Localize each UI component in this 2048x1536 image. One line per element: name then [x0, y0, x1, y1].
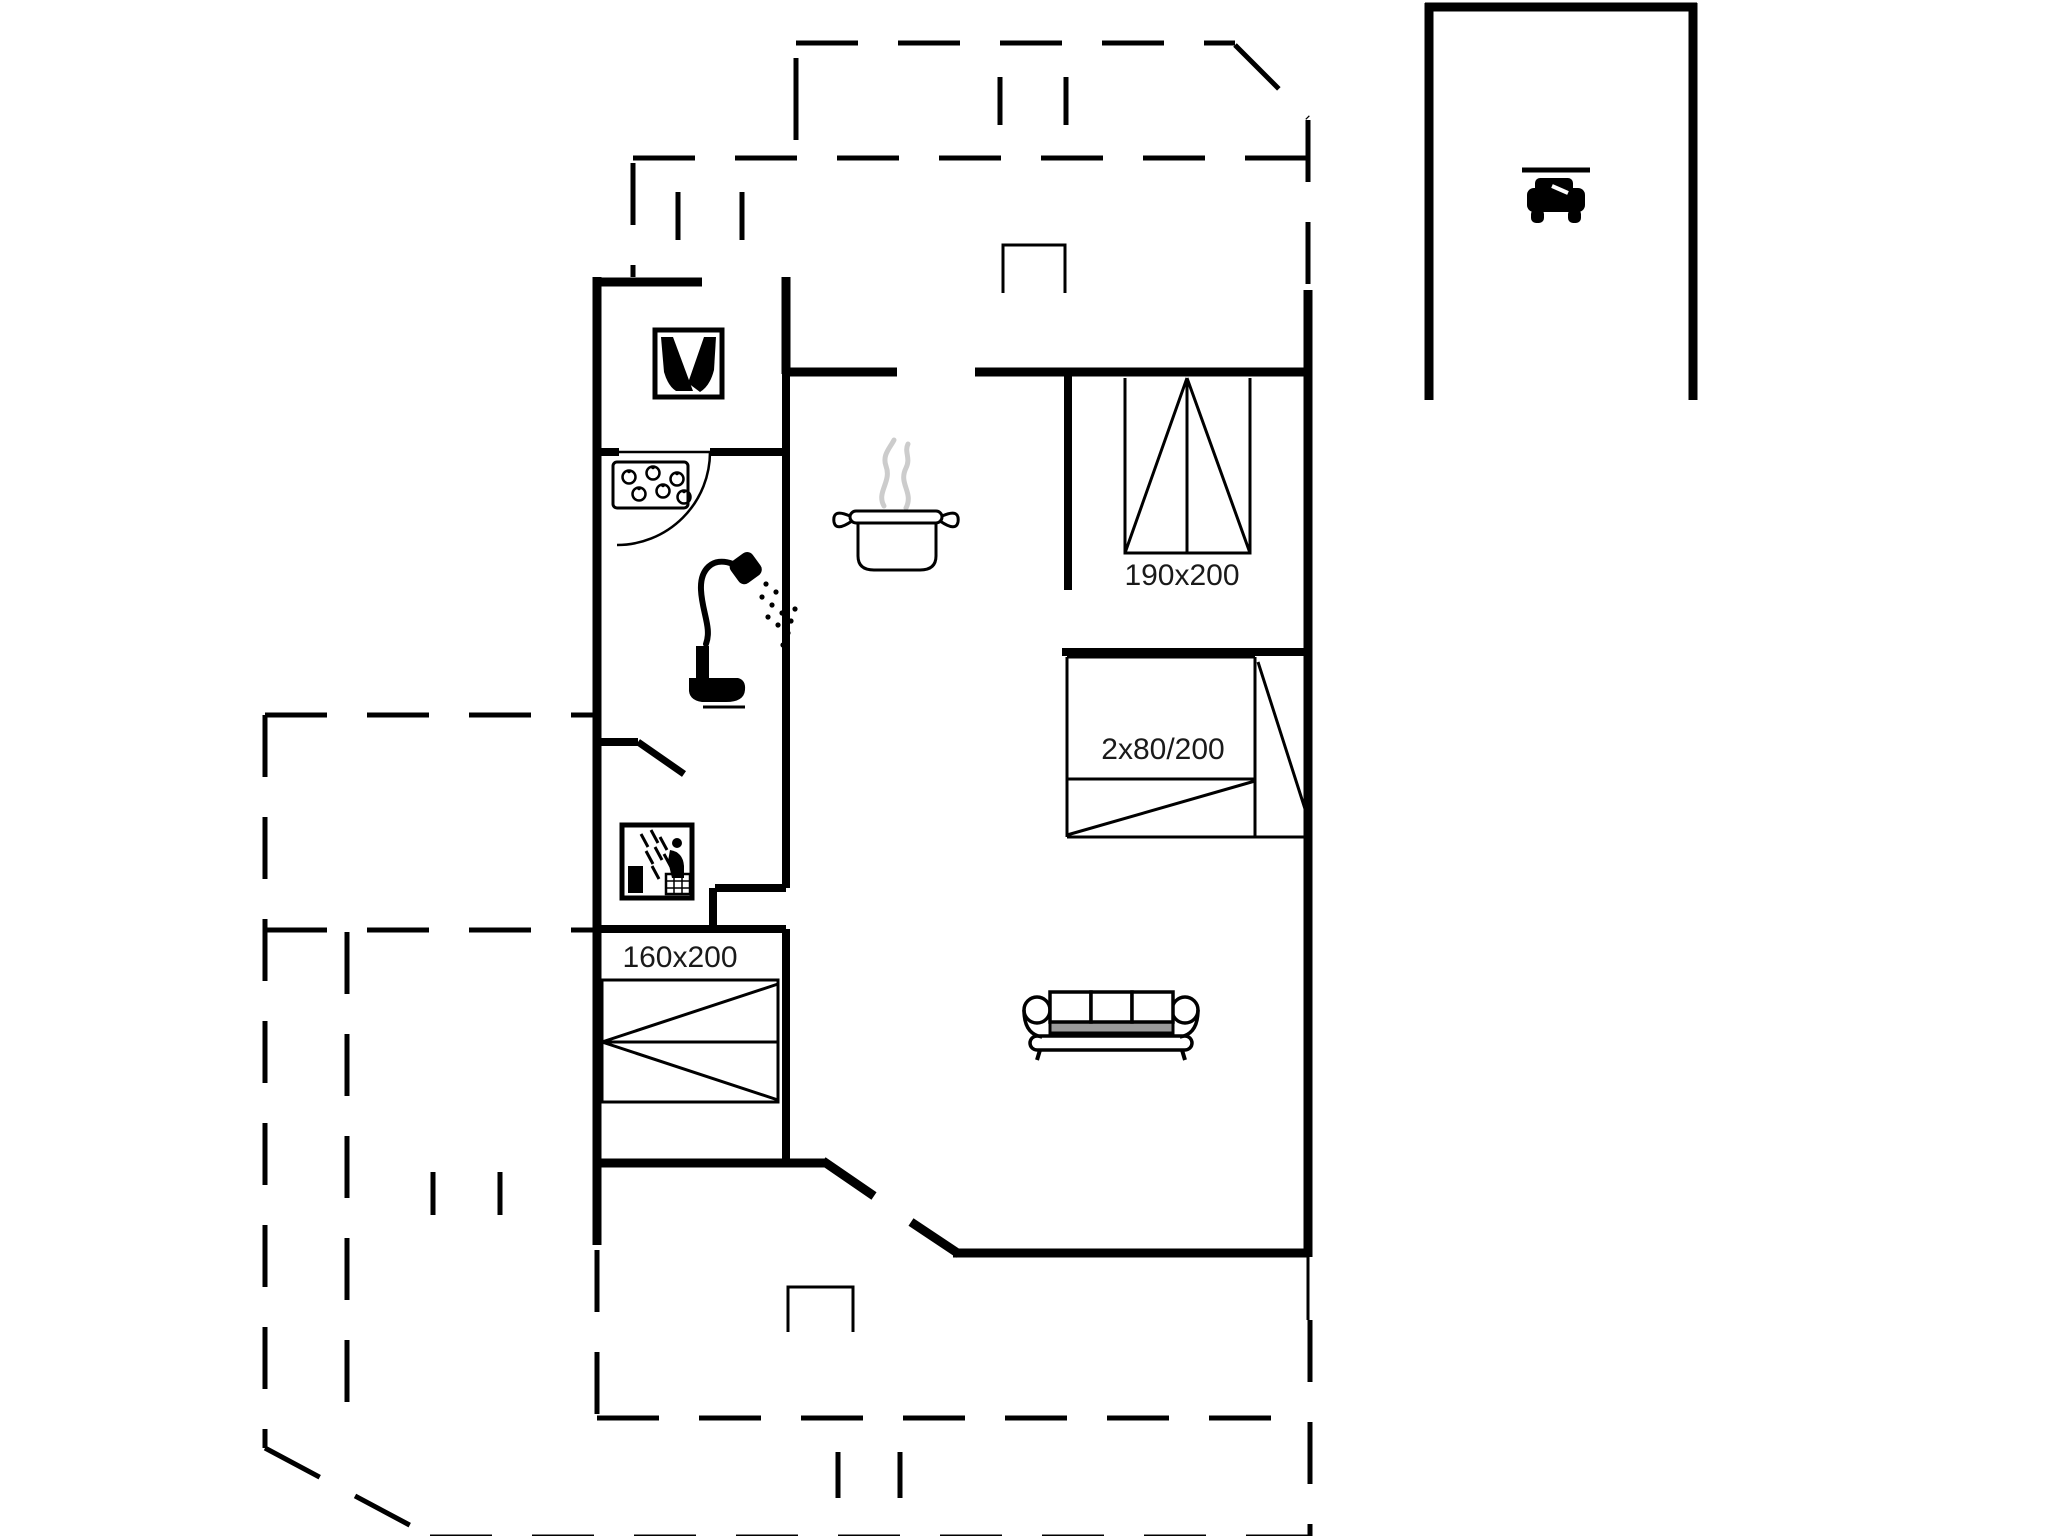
terrace-step-markers — [433, 77, 1066, 1498]
pot-rim — [850, 511, 942, 523]
pot-body — [858, 523, 936, 570]
toilet-tank — [696, 646, 709, 680]
floor-plan-svg: 190x200 2x80/200 160x200 — [0, 0, 2048, 1536]
fireplace-icon — [655, 330, 722, 397]
toilet-icon — [689, 646, 745, 707]
hob-icon — [613, 462, 691, 508]
sofa-arm-right — [1172, 997, 1198, 1023]
shower-spray — [759, 581, 797, 647]
double-bed-label: 190x200 — [1124, 559, 1239, 592]
sauna-icon — [622, 825, 692, 898]
sofa-icon — [1024, 992, 1198, 1060]
car-wheel-left — [1531, 209, 1544, 223]
house-outer-walls — [593, 277, 1308, 1257]
sofa-cushion-3 — [1132, 992, 1173, 1022]
master-bed-symbol — [602, 980, 778, 1102]
car-icon — [1522, 170, 1590, 223]
sofa-cushion-1 — [1050, 992, 1091, 1022]
master-bed-label: 160x200 — [622, 941, 737, 974]
cooking-pot-icon — [834, 440, 958, 570]
sauna-door-leaf — [638, 742, 684, 774]
shower-arm — [701, 562, 733, 644]
garage — [1425, 3, 1697, 400]
double-bed-symbol — [1125, 378, 1250, 553]
sofa-cushion-2 — [1091, 992, 1132, 1022]
car-body — [1527, 188, 1585, 212]
house-walls — [593, 277, 1308, 1257]
terrace-solid-bits — [796, 58, 1308, 1320]
floor-plan-page: 190x200 2x80/200 160x200 — [0, 0, 2048, 1536]
terrace-top-outer — [796, 43, 1308, 288]
shower-head — [727, 549, 765, 587]
pot-steam — [882, 440, 909, 508]
bunk-bed-label: 2x80/200 — [1101, 733, 1224, 766]
terrace-top-inner — [633, 158, 1308, 277]
sauna-stove — [628, 866, 643, 893]
terrace-left-outline — [265, 715, 597, 1448]
sofa-base — [1030, 1036, 1192, 1050]
house-interior-walls — [597, 372, 1308, 1163]
toilet-bowl — [689, 678, 745, 702]
car-wheel-right — [1568, 209, 1581, 223]
sofa-arm-left — [1024, 997, 1050, 1023]
